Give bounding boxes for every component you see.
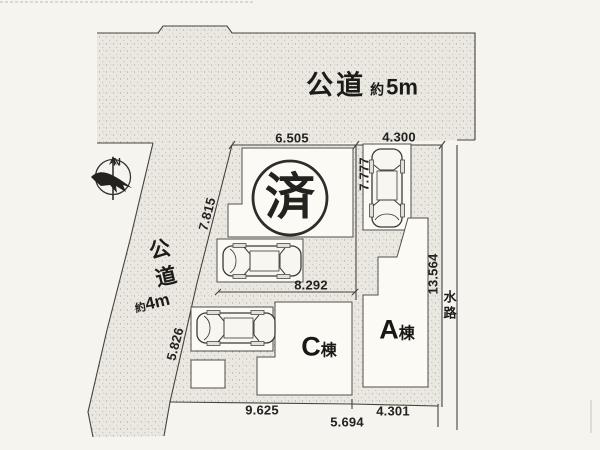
- car-south: [197, 311, 275, 346]
- dim-east-side: 13.564: [427, 254, 440, 295]
- road-top-width-value: 5m: [386, 77, 418, 99]
- dim-bottom-right: 4.301: [376, 405, 410, 418]
- building-c-label: C 棟: [301, 334, 337, 361]
- sold-badge-text: 済: [265, 172, 315, 222]
- car-north: [370, 149, 405, 227]
- waterway-label: 水路: [443, 290, 456, 322]
- building-a-label: A 棟: [379, 317, 415, 344]
- road-top-width-prefix: 約: [370, 83, 384, 97]
- building-c-suffix: 棟: [321, 344, 337, 360]
- dim-top-left: 6.505: [275, 132, 309, 145]
- car-middle: [223, 244, 301, 279]
- dim-top-right: 4.300: [382, 131, 416, 144]
- dim-inner-vertical: 7.777: [358, 157, 371, 191]
- approach-pad: [191, 360, 225, 388]
- building-a-suffix: 棟: [399, 327, 415, 343]
- compass-icon: [91, 156, 132, 200]
- site-plan-drawing: [0, 0, 600, 450]
- dim-bottom-left: 9.625: [245, 404, 279, 417]
- dim-inner-width: 8.292: [294, 279, 328, 292]
- road-top-label: 公道 約 5m: [306, 73, 418, 100]
- site-plan: 公道 約 5m 公道 約 4m 水路 済 N A 棟 C 棟 6.505 4.3…: [0, 0, 600, 450]
- building-a-letter: A: [379, 317, 399, 344]
- dim-bottom-center: 5.694: [330, 416, 364, 429]
- road-top-name: 公道: [306, 73, 366, 100]
- building-c-letter: C: [301, 334, 321, 361]
- compass-north-label: N: [113, 158, 121, 169]
